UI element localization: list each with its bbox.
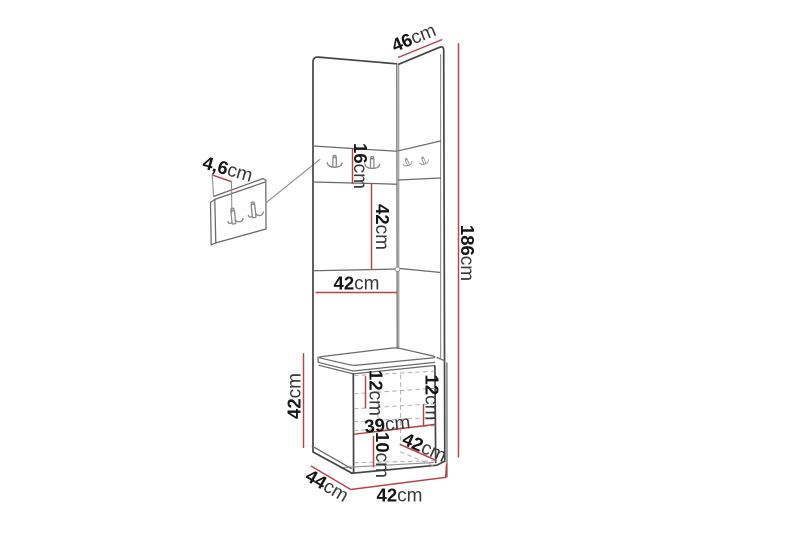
svg-text:186cm: 186cm (456, 225, 478, 281)
svg-text:10cm: 10cm (371, 432, 393, 478)
svg-text:16cm: 16cm (349, 143, 371, 189)
svg-text:42cm: 42cm (377, 485, 423, 507)
svg-text:42cm: 42cm (334, 273, 380, 295)
svg-text:12cm: 12cm (365, 370, 387, 416)
svg-text:42cm: 42cm (284, 373, 306, 419)
svg-text:12cm: 12cm (421, 375, 443, 421)
svg-text:42cm: 42cm (371, 204, 393, 250)
